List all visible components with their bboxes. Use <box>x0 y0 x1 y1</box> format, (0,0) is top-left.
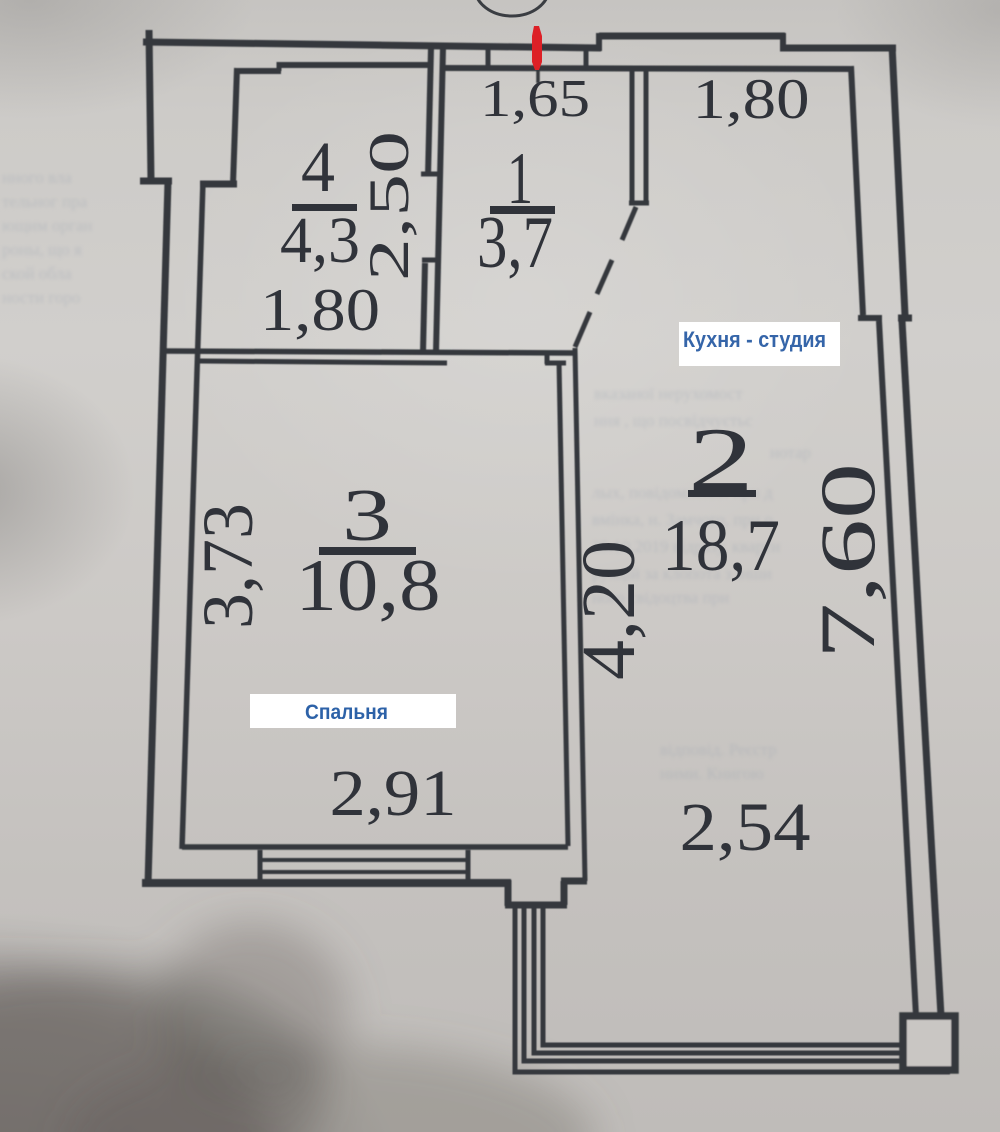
svg-text:7,60: 7,60 <box>804 463 891 659</box>
svg-text:відповід. Реєстр: відповід. Реєстр <box>660 740 777 759</box>
svg-text:ности горо: ности горо <box>2 288 80 307</box>
svg-text:1,65: 1,65 <box>480 70 590 128</box>
svg-text:Кухня - студия: Кухня - студия <box>683 327 826 352</box>
svg-text:ними. Книгою: ними. Книгою <box>660 764 764 783</box>
svg-text:тельног пра: тельног пра <box>2 192 88 211</box>
svg-text:нного вла: нного вла <box>2 168 72 187</box>
svg-text:2,50: 2,50 <box>358 131 421 281</box>
svg-text:4,20: 4,20 <box>567 540 651 680</box>
svg-text:3,7: 3,7 <box>477 202 553 284</box>
svg-text:вказаної нерухомост: вказаної нерухомост <box>594 384 743 403</box>
svg-text:1,80: 1,80 <box>260 277 380 343</box>
svg-text:4,3: 4,3 <box>280 204 360 277</box>
svg-text:1,80: 1,80 <box>693 68 810 131</box>
svg-text:ской обла: ской обла <box>2 264 72 283</box>
svg-text:4: 4 <box>301 127 335 207</box>
svg-text:18,7: 18,7 <box>662 505 780 587</box>
svg-text:ющим орган: ющим орган <box>2 216 93 235</box>
svg-text:роны, що я: роны, що я <box>2 240 82 259</box>
svg-text:2,91: 2,91 <box>330 757 457 830</box>
svg-text:3,73: 3,73 <box>188 503 268 629</box>
svg-text:10,8: 10,8 <box>296 545 441 627</box>
svg-text:нотар: нотар <box>770 443 811 462</box>
svg-text:2,54: 2,54 <box>680 789 811 865</box>
svg-text:Спальня: Спальня <box>305 701 388 724</box>
